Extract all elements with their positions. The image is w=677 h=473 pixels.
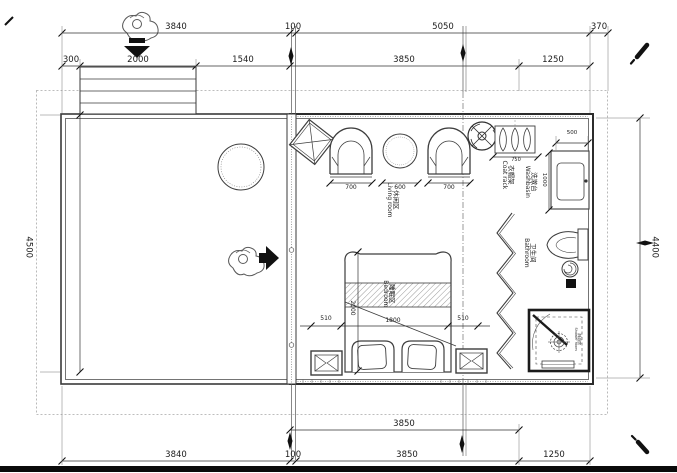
dim-washbasin-1000: 1000 [540, 165, 546, 195]
dim-chair-700a: 700 [336, 185, 366, 191]
dim-chair-700b: 700 [434, 185, 464, 191]
dim-bed-1800: 1800 [378, 318, 408, 324]
dim-bed-510b: 510 [448, 316, 478, 322]
room-label-bedroom: 睡眠区 Bedroom [381, 272, 395, 316]
ceiling-fan-icon [468, 122, 496, 150]
dim-bottom2-3840: 3840 [146, 451, 206, 460]
dim-bottom2-100: 100 [273, 451, 313, 460]
armchair-right [428, 128, 470, 177]
center-wall [287, 114, 296, 384]
floorplan-canvas [0, 0, 677, 473]
dim-washbasin-500: 500 [557, 131, 587, 137]
dim-top-100: 100 [273, 23, 313, 32]
dim-top2-3850: 3850 [374, 56, 434, 65]
dim-top-3840: 3840 [146, 23, 206, 32]
room-label-coat-rack: 衣帽架 Coat rack [500, 153, 514, 197]
dim-top2-300: 300 [41, 56, 101, 65]
dim-top-5050: 5050 [413, 23, 473, 32]
dim-bottom1-3850: 3850 [374, 420, 434, 429]
dim-bed-510a: 510 [311, 316, 341, 322]
tea-table [383, 134, 417, 168]
pen-icon-bottom [632, 436, 647, 452]
nightstand-right [456, 349, 487, 373]
dim-bottom2-1250: 1250 [524, 451, 584, 460]
wall-detail [289, 248, 294, 253]
room-label-washbasin: 洗漱台 Washbasin [523, 160, 537, 204]
window-bottom-edge [0, 466, 677, 472]
wall-detail [289, 343, 294, 348]
entry-steps [80, 67, 196, 114]
dim-top2-1250: 1250 [523, 56, 583, 65]
nightstand-left [311, 351, 342, 375]
dim-right-4400: 4400 [650, 217, 659, 277]
room-label-living: 休闲区 Living room [385, 178, 399, 222]
room-label-bathroom: 卫生间 Bathroom [522, 231, 536, 275]
washbasin-counter [551, 151, 589, 209]
armchair-left [330, 128, 372, 177]
dim-top-370: 370 [569, 23, 629, 32]
bed-cushion-right [402, 341, 444, 372]
toilet-paper-icon [562, 261, 578, 277]
dim-left-4500: 4500 [24, 217, 33, 277]
pen-mark-icon [5, 17, 13, 25]
dim-top2-2000: 2000 [108, 56, 168, 65]
bed-blanket [345, 283, 451, 307]
floorplan-viewport: 3840 100 5050 370 300 2000 1540 3850 125… [0, 0, 677, 473]
dim-bottom2-3850: 3850 [377, 451, 437, 460]
pen-icon-top [631, 45, 647, 64]
round-table [218, 144, 264, 190]
floor-drain [566, 279, 576, 288]
dim-bed-2000: 2000 [349, 293, 355, 323]
room-label-shower: 淋浴房 Shower room [573, 319, 581, 359]
dim-top2-1540: 1540 [213, 56, 273, 65]
